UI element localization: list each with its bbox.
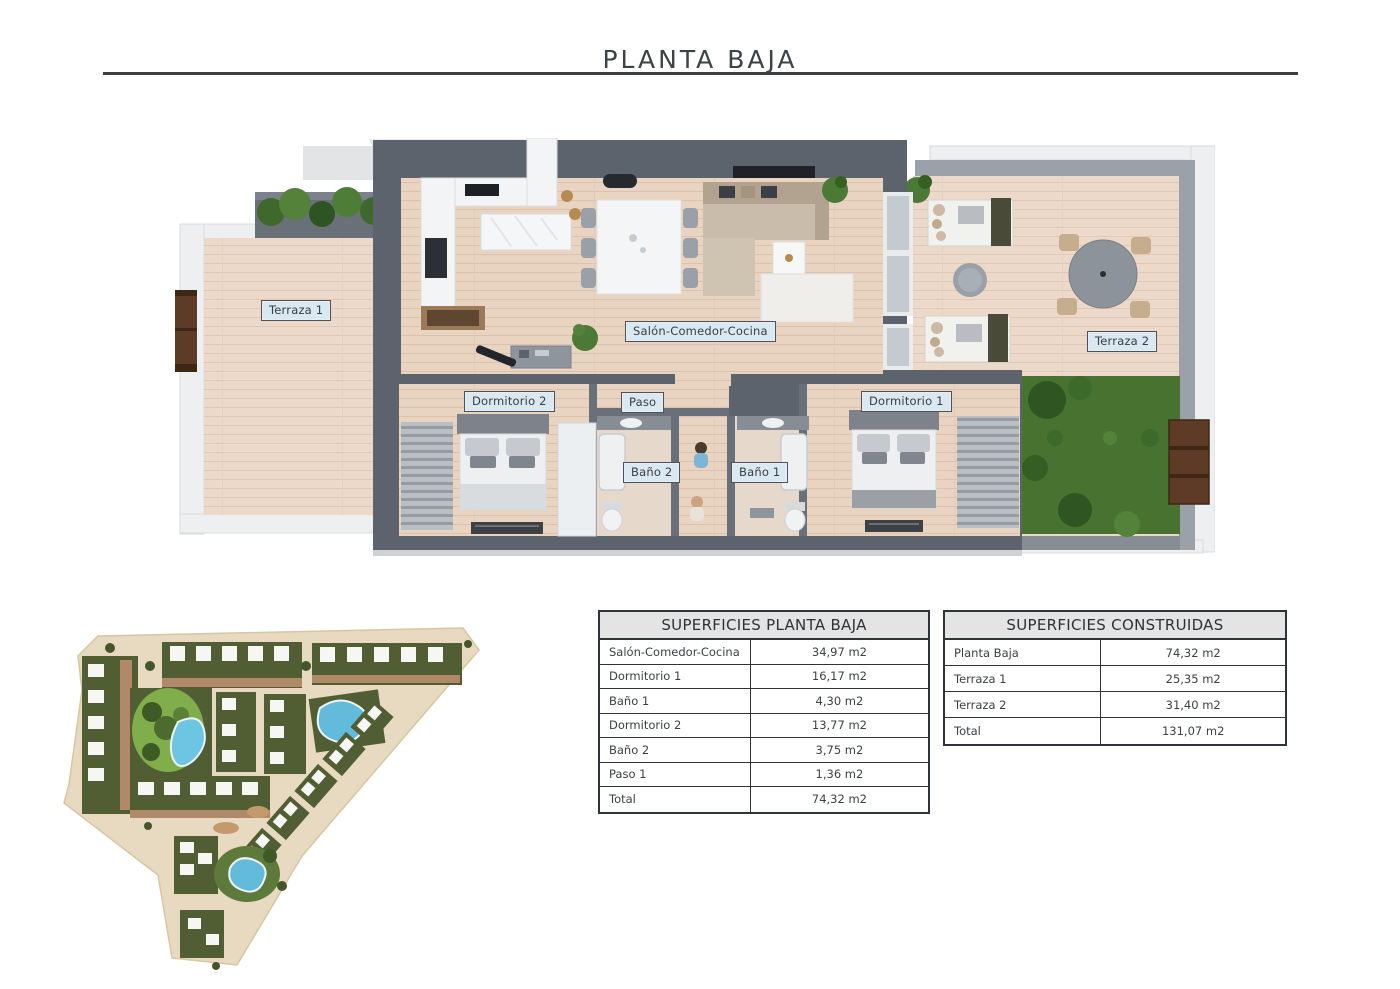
building-row [162, 642, 302, 688]
site-plan-rendering [20, 616, 520, 986]
room-name-cell: Terraza 1 [945, 666, 1101, 691]
table-row: Dormitorio 116,17 m2 [600, 665, 928, 690]
building-row [312, 643, 462, 685]
terrace-door [175, 290, 197, 372]
area-value-cell: 74,32 m2 [751, 787, 928, 812]
lounge-daybed [928, 198, 1013, 246]
table-row: Dormitorio 213,77 m2 [600, 714, 928, 739]
table-row: Baño 23,75 m2 [600, 738, 928, 763]
area-value-cell: 3,75 m2 [751, 738, 928, 762]
table-row: Salón-Comedor-Cocina34,97 m2 [600, 640, 928, 665]
site-plan-pool [130, 688, 212, 784]
area-value-cell: 25,35 m2 [1101, 666, 1285, 691]
floor-plan: Terraza 1Salón-Comedor-CocinaTerraza 2Do… [175, 138, 1215, 558]
room-label-dormitorio-1: Dormitorio 1 [861, 391, 952, 412]
room-name-cell: Salón-Comedor-Cocina [600, 640, 751, 664]
room-name-cell: Total [945, 718, 1101, 744]
room-name-cell: Paso 1 [600, 763, 751, 787]
floor-plan-rendering [175, 138, 1215, 558]
terrace-dining-set [1057, 234, 1151, 318]
page-title: PLANTA BAJA [0, 45, 1400, 74]
room-label-dormitorio-2: Dormitorio 2 [464, 391, 555, 412]
terrace-bench [1169, 420, 1209, 504]
room-label-terraza-1: Terraza 1 [261, 300, 331, 321]
table-row: Planta Baja74,32 m2 [945, 640, 1285, 666]
table-row: Paso 11,36 m2 [600, 763, 928, 788]
table-row: Terraza 231,40 m2 [945, 692, 1285, 718]
site-plan [20, 616, 520, 986]
area-value-cell: 16,17 m2 [751, 665, 928, 689]
terrace-glass-doors [883, 192, 913, 370]
table-row: Terraza 125,35 m2 [945, 666, 1285, 692]
area-value-cell: 131,07 m2 [1101, 718, 1285, 744]
brochure-page: PLANTA BAJA [0, 0, 1400, 989]
room-label-bano-2: Baño 2 [623, 462, 680, 483]
room-name-cell: Terraza 2 [945, 692, 1101, 717]
room-label-salon: Salón-Comedor-Cocina [625, 321, 776, 342]
table-row: Total131,07 m2 [945, 718, 1285, 744]
area-value-cell: 34,97 m2 [751, 640, 928, 664]
room-label-terraza-2: Terraza 2 [1087, 331, 1157, 352]
room-name-cell: Baño 1 [600, 689, 751, 713]
table-body: Planta Baja74,32 m2Terraza 125,35 m2Terr… [945, 640, 1285, 744]
area-value-cell: 1,36 m2 [751, 763, 928, 787]
area-value-cell: 13,77 m2 [751, 714, 928, 738]
lounge-daybed-2 [925, 314, 1010, 362]
room-name-cell: Baño 2 [600, 738, 751, 762]
site-plan-pool [214, 846, 280, 902]
table-row: Baño 14,30 m2 [600, 689, 928, 714]
table-title: SUPERFICIES PLANTA BAJA [600, 612, 928, 640]
area-value-cell: 4,30 m2 [751, 689, 928, 713]
area-value-cell: 74,32 m2 [1101, 640, 1285, 665]
room-name-cell: Planta Baja [945, 640, 1101, 665]
table-title: SUPERFICIES CONSTRUIDAS [945, 612, 1285, 640]
table-body: Salón-Comedor-Cocina34,97 m2Dormitorio 1… [600, 640, 928, 812]
room-name-cell: Dormitorio 2 [600, 714, 751, 738]
title-divider [103, 72, 1298, 75]
room-name-cell: Total [600, 787, 751, 812]
table-row: Total74,32 m2 [600, 787, 928, 812]
superficies-construidas-table: SUPERFICIES CONSTRUIDAS Planta Baja74,32… [943, 610, 1287, 746]
garden-grass [1020, 376, 1180, 537]
room-name-cell: Dormitorio 1 [600, 665, 751, 689]
building-row [82, 656, 138, 814]
area-value-cell: 31,40 m2 [1101, 692, 1285, 717]
room-label-bano-1: Baño 1 [731, 462, 788, 483]
superficies-planta-baja-table: SUPERFICIES PLANTA BAJA Salón-Comedor-Co… [598, 610, 930, 814]
room-label-paso: Paso [621, 392, 664, 413]
